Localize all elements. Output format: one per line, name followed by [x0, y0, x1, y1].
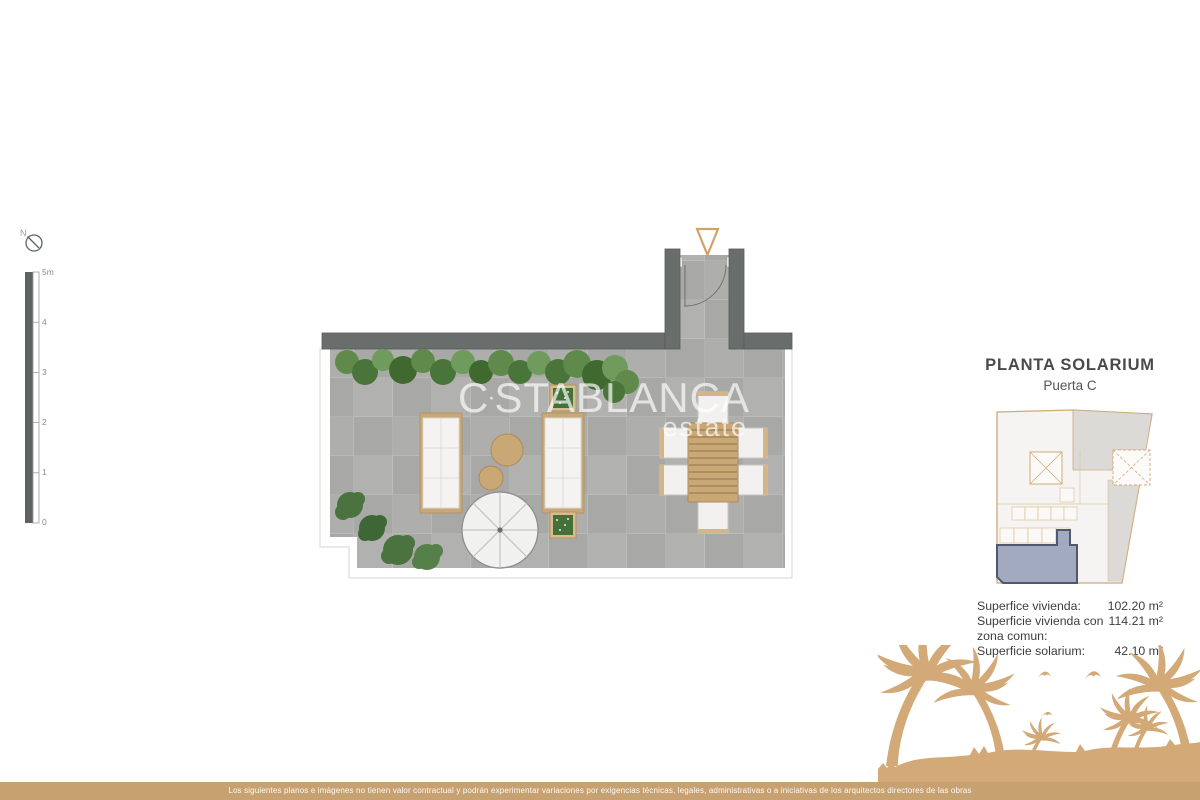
entrance-corridor — [678, 255, 731, 350]
entrance-arrow-icon — [697, 229, 718, 255]
disclaimer-text: Los siguientes planos e imágenes no tien… — [0, 782, 1200, 800]
dining-chair — [698, 392, 728, 423]
dining-chair — [737, 465, 767, 495]
solarium-floor-plan — [315, 222, 800, 580]
dining-chair — [698, 502, 728, 533]
sun-lounger — [420, 413, 462, 513]
building-key-plan — [988, 406, 1156, 588]
building-gray-strip — [1108, 480, 1140, 581]
scale-labels: 5m 4 3 2 1 0 — [42, 267, 54, 527]
parasol-umbrella — [462, 492, 538, 568]
wall-shaft-right — [729, 249, 744, 349]
svg-text:0: 0 — [42, 517, 47, 527]
svg-text:1: 1 — [42, 467, 47, 477]
svg-text:5m: 5m — [42, 267, 54, 277]
scale-bar: 5m 4 3 2 1 0 — [14, 225, 66, 537]
dining-chair — [737, 428, 767, 458]
light-well-dashed — [1113, 450, 1150, 485]
planter-box — [550, 512, 576, 538]
planter-box — [550, 385, 576, 411]
surface-row: Superfice vivienda: 102.20 m² — [977, 599, 1163, 614]
svg-text:4: 4 — [42, 317, 47, 327]
dining-chair — [660, 428, 690, 458]
dining-chair — [660, 465, 690, 495]
page-title: PLANTA SOLARIUM — [955, 356, 1185, 375]
plan-sheet: N 5m 4 3 2 1 0 — [0, 0, 1200, 800]
wall-top — [322, 333, 665, 349]
sun-lounger — [542, 413, 584, 513]
page-subtitle: Puerta C — [955, 378, 1185, 393]
disclaimer-bar: Los siguientes planos e imágenes no tien… — [0, 782, 1200, 800]
round-side-table — [491, 434, 523, 466]
scale-bar-light — [33, 272, 39, 523]
dining-table — [688, 423, 738, 502]
title-block: PLANTA SOLARIUM Puerta C — [955, 356, 1185, 393]
light-well — [1030, 452, 1062, 484]
surface-row: Superficie vivienda con 114.21 m² — [977, 614, 1163, 629]
svg-text:2: 2 — [42, 417, 47, 427]
wall-shaft-left — [665, 249, 680, 349]
svg-text:3: 3 — [42, 367, 47, 377]
palm-beach-illustration — [878, 645, 1200, 782]
round-side-table — [479, 466, 503, 490]
surface-row: zona comun: — [977, 629, 1163, 644]
wall-top-right — [744, 333, 792, 349]
scale-bar-dark — [25, 272, 33, 523]
